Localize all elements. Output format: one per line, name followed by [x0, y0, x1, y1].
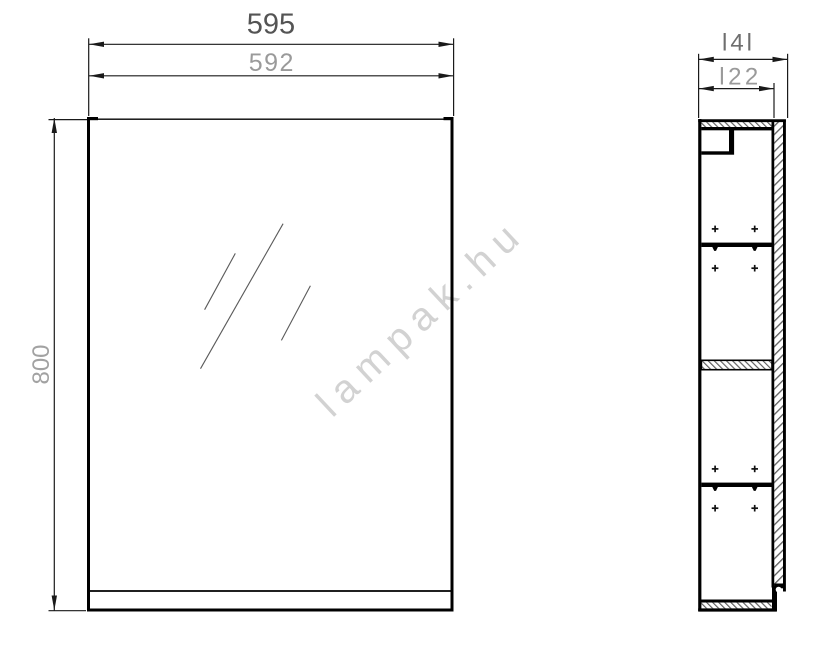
svg-text:l22: l22 [719, 64, 762, 91]
svg-text:592: 592 [249, 49, 295, 77]
svg-text:800: 800 [28, 344, 55, 384]
svg-text:595: 595 [247, 9, 295, 41]
svg-text:l4l: l4l [722, 30, 755, 57]
